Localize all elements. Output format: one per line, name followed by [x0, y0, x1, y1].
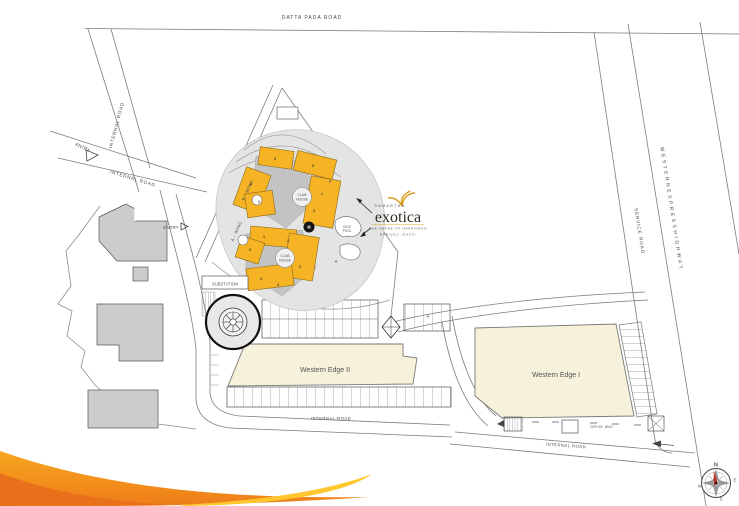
clubhouse-lower-label-2: HOUSE: [279, 259, 292, 263]
road-network: [50, 22, 739, 506]
site-plan-canvas: DATTA PADA ROAD INTERNAL ROAD ENTRY INTE…: [0, 0, 739, 506]
clubhouse-lower-label-1: CLUB: [280, 254, 290, 258]
western-edge-1-building: [475, 324, 634, 418]
western-express-highway-label: W E S T E R N E X P R E S S H I G H W A …: [658, 146, 683, 269]
road-tick-marks: [211, 355, 219, 385]
existing-building-2: [133, 267, 148, 281]
compass-e-label: E: [733, 478, 736, 483]
logo-name: exotica: [375, 209, 421, 226]
internal-road-label-nw: INTERNAL ROAD: [108, 102, 125, 149]
tower-number: 2: [313, 209, 315, 213]
tower-number: 3: [249, 248, 251, 252]
tower-number: 1: [263, 235, 265, 239]
datta-pada-road-label: DATTA PADA ROAD: [282, 15, 343, 21]
tower-number: 4: [250, 182, 252, 186]
driveway-details: [497, 416, 674, 447]
arrow-left-small-icon: [497, 420, 504, 427]
tower-number: 4: [260, 277, 262, 281]
gate-diamond: [382, 316, 400, 338]
round-feature-1: [252, 195, 262, 205]
amenity-box: [277, 107, 298, 119]
logo-tagline: THE ABODE OF HAPPINESS: [369, 227, 427, 231]
tower-number: 2: [299, 265, 301, 269]
internal-road-a-west: [88, 29, 139, 192]
drive-way-label: DRIVE WAY: [590, 425, 613, 429]
logo-brand: SAMARTHA: [374, 204, 405, 208]
existing-building-1: [99, 204, 167, 261]
tree-marker: ✳: [426, 314, 430, 319]
compass-n-label: N: [714, 463, 718, 469]
entry-label-2: ENTRY: [163, 225, 179, 230]
logo-location: BORIVALI (EAST): [380, 233, 416, 237]
stair-ramp: [504, 417, 522, 431]
western-edge-1-label: Western Edge I: [532, 372, 580, 379]
existing-buildings: [88, 204, 167, 428]
tower-number: 3: [312, 164, 314, 168]
existing-building-4: [88, 390, 158, 428]
clubhouse-upper-label-1: CLUB: [297, 193, 307, 197]
western-edge-2-label: Western Edge II: [300, 367, 350, 374]
tower-number: 3: [274, 157, 276, 161]
western-edge-2-building: [228, 344, 417, 386]
compass-s-label: S: [719, 497, 722, 502]
internal-road-a-east: [111, 29, 150, 168]
tree-marker: ✳: [328, 179, 332, 184]
feature-dark-circle-hub: [307, 225, 311, 229]
tower-number: 3: [277, 283, 279, 287]
tower-number: 2: [258, 200, 260, 204]
service-road-east-edge: [628, 24, 706, 506]
compass-rose: N E S W: [698, 463, 737, 502]
service-road-label: SERVICE ROAD: [633, 208, 645, 255]
tower-number: 1: [321, 192, 323, 196]
site-plan: DATTA PADA ROAD INTERNAL ROAD ENTRY INTE…: [0, 0, 739, 506]
datta-pada-road-line: [85, 29, 739, 35]
kids-pool-label-2: POOL: [343, 229, 352, 233]
round-feature-2: [238, 235, 248, 245]
driveway-box: [562, 420, 578, 433]
clubhouse-upper-label-2: HOUSE: [296, 198, 309, 202]
existing-building-3: [97, 304, 163, 361]
tower-number: 2: [287, 239, 289, 243]
highway-east-edge: [700, 22, 739, 254]
internal-road-label-sw: INTERNAL ROAD: [311, 416, 351, 421]
parking-band-bottom: [227, 387, 451, 407]
substation-label: SUBSTATION: [212, 282, 238, 287]
footer-swoosh: [0, 451, 372, 506]
tree-marker: ✳: [334, 259, 338, 264]
driveway-dashes: [532, 422, 641, 425]
wheel-feature: [206, 295, 260, 349]
pool-lower: [340, 244, 360, 260]
internal-road-b-north: [50, 131, 196, 178]
